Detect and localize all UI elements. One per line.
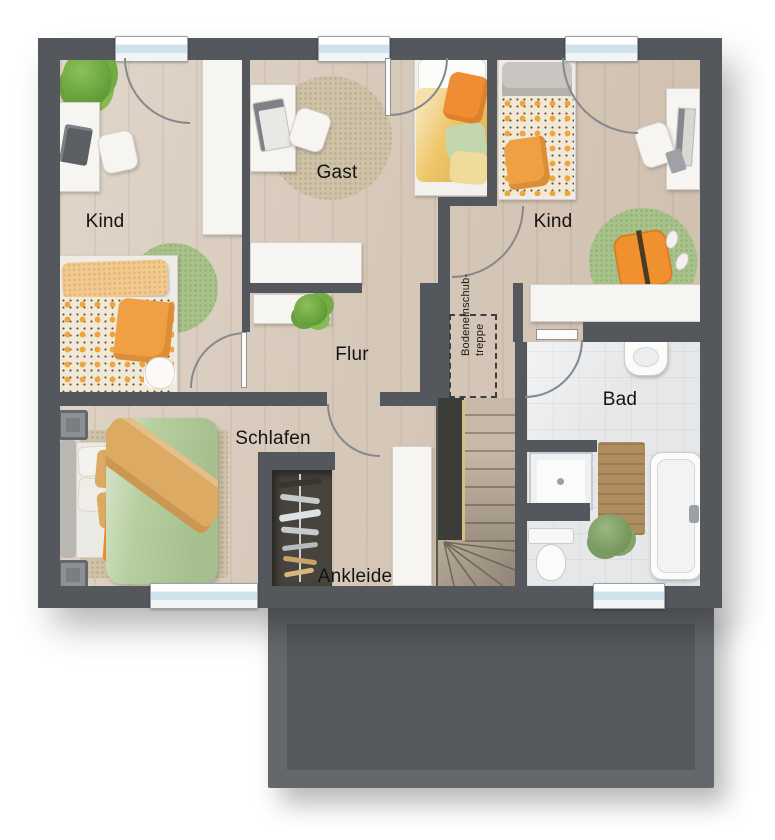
nightstand [58, 410, 88, 440]
attic-hatch-label-line1: Bodeneinschub- [459, 274, 473, 356]
blanket [113, 297, 175, 365]
room-label-gast: Gast [317, 162, 358, 184]
exterior-wall-right [700, 38, 722, 608]
interior-wall [513, 283, 523, 342]
interior-wall [515, 503, 590, 521]
window [150, 583, 258, 609]
room-label-kind-right: Kind [534, 211, 573, 233]
pillow [449, 150, 490, 185]
floor-plan: Bodeneinschub- treppe Kind Gast Kind Flu… [0, 0, 775, 840]
headboard [60, 440, 76, 558]
interior-wall [438, 197, 497, 206]
sink-basin [633, 347, 659, 367]
interior-wall [583, 322, 700, 342]
toilet-tank [528, 528, 574, 544]
garage-roof-panel [287, 624, 695, 770]
cabinet [392, 446, 432, 586]
interior-wall [60, 392, 327, 406]
interior-wall [420, 283, 450, 398]
pillow [61, 259, 168, 299]
interior-wall [250, 283, 362, 293]
towel [588, 514, 632, 556]
blanket [106, 418, 218, 536]
side-table [146, 358, 174, 388]
wardrobe [530, 284, 706, 322]
shower-drain [557, 478, 564, 485]
window-leaf [385, 58, 391, 116]
attic-hatch-label: Bodeneinschub- treppe [459, 308, 487, 404]
room-label-flur: Flur [335, 344, 369, 366]
room-label-schlafen: Schlafen [235, 428, 311, 450]
pillow [502, 62, 572, 100]
sink [624, 340, 668, 376]
toilet [536, 544, 566, 581]
door-leaf [536, 329, 578, 340]
wardrobe [202, 57, 246, 235]
room-label-ankleide: Ankleide [318, 566, 392, 588]
room-label-bad: Bad [603, 389, 637, 411]
garage-roof [268, 598, 714, 788]
attic-hatch-label-line2: treppe [473, 324, 487, 356]
window [318, 36, 390, 62]
interior-wall [487, 60, 497, 197]
exterior-wall-left [38, 38, 60, 608]
stair-winders [438, 540, 515, 586]
closet-wall [258, 470, 272, 586]
stair-shading [465, 398, 515, 542]
window [593, 583, 665, 609]
plant-icon [294, 294, 328, 326]
bath-faucet [689, 505, 699, 523]
bathtub [650, 452, 702, 580]
room-label-kind-left: Kind [86, 211, 125, 233]
shower-partition [527, 440, 597, 452]
shower [529, 452, 593, 510]
stairwell-void [438, 398, 464, 544]
interior-wall [438, 206, 450, 283]
blanket [503, 135, 552, 190]
closet-wall [258, 452, 335, 470]
duvet [106, 418, 218, 584]
door-leaf [241, 332, 247, 388]
sideboard [250, 242, 362, 284]
interior-wall [242, 60, 250, 332]
